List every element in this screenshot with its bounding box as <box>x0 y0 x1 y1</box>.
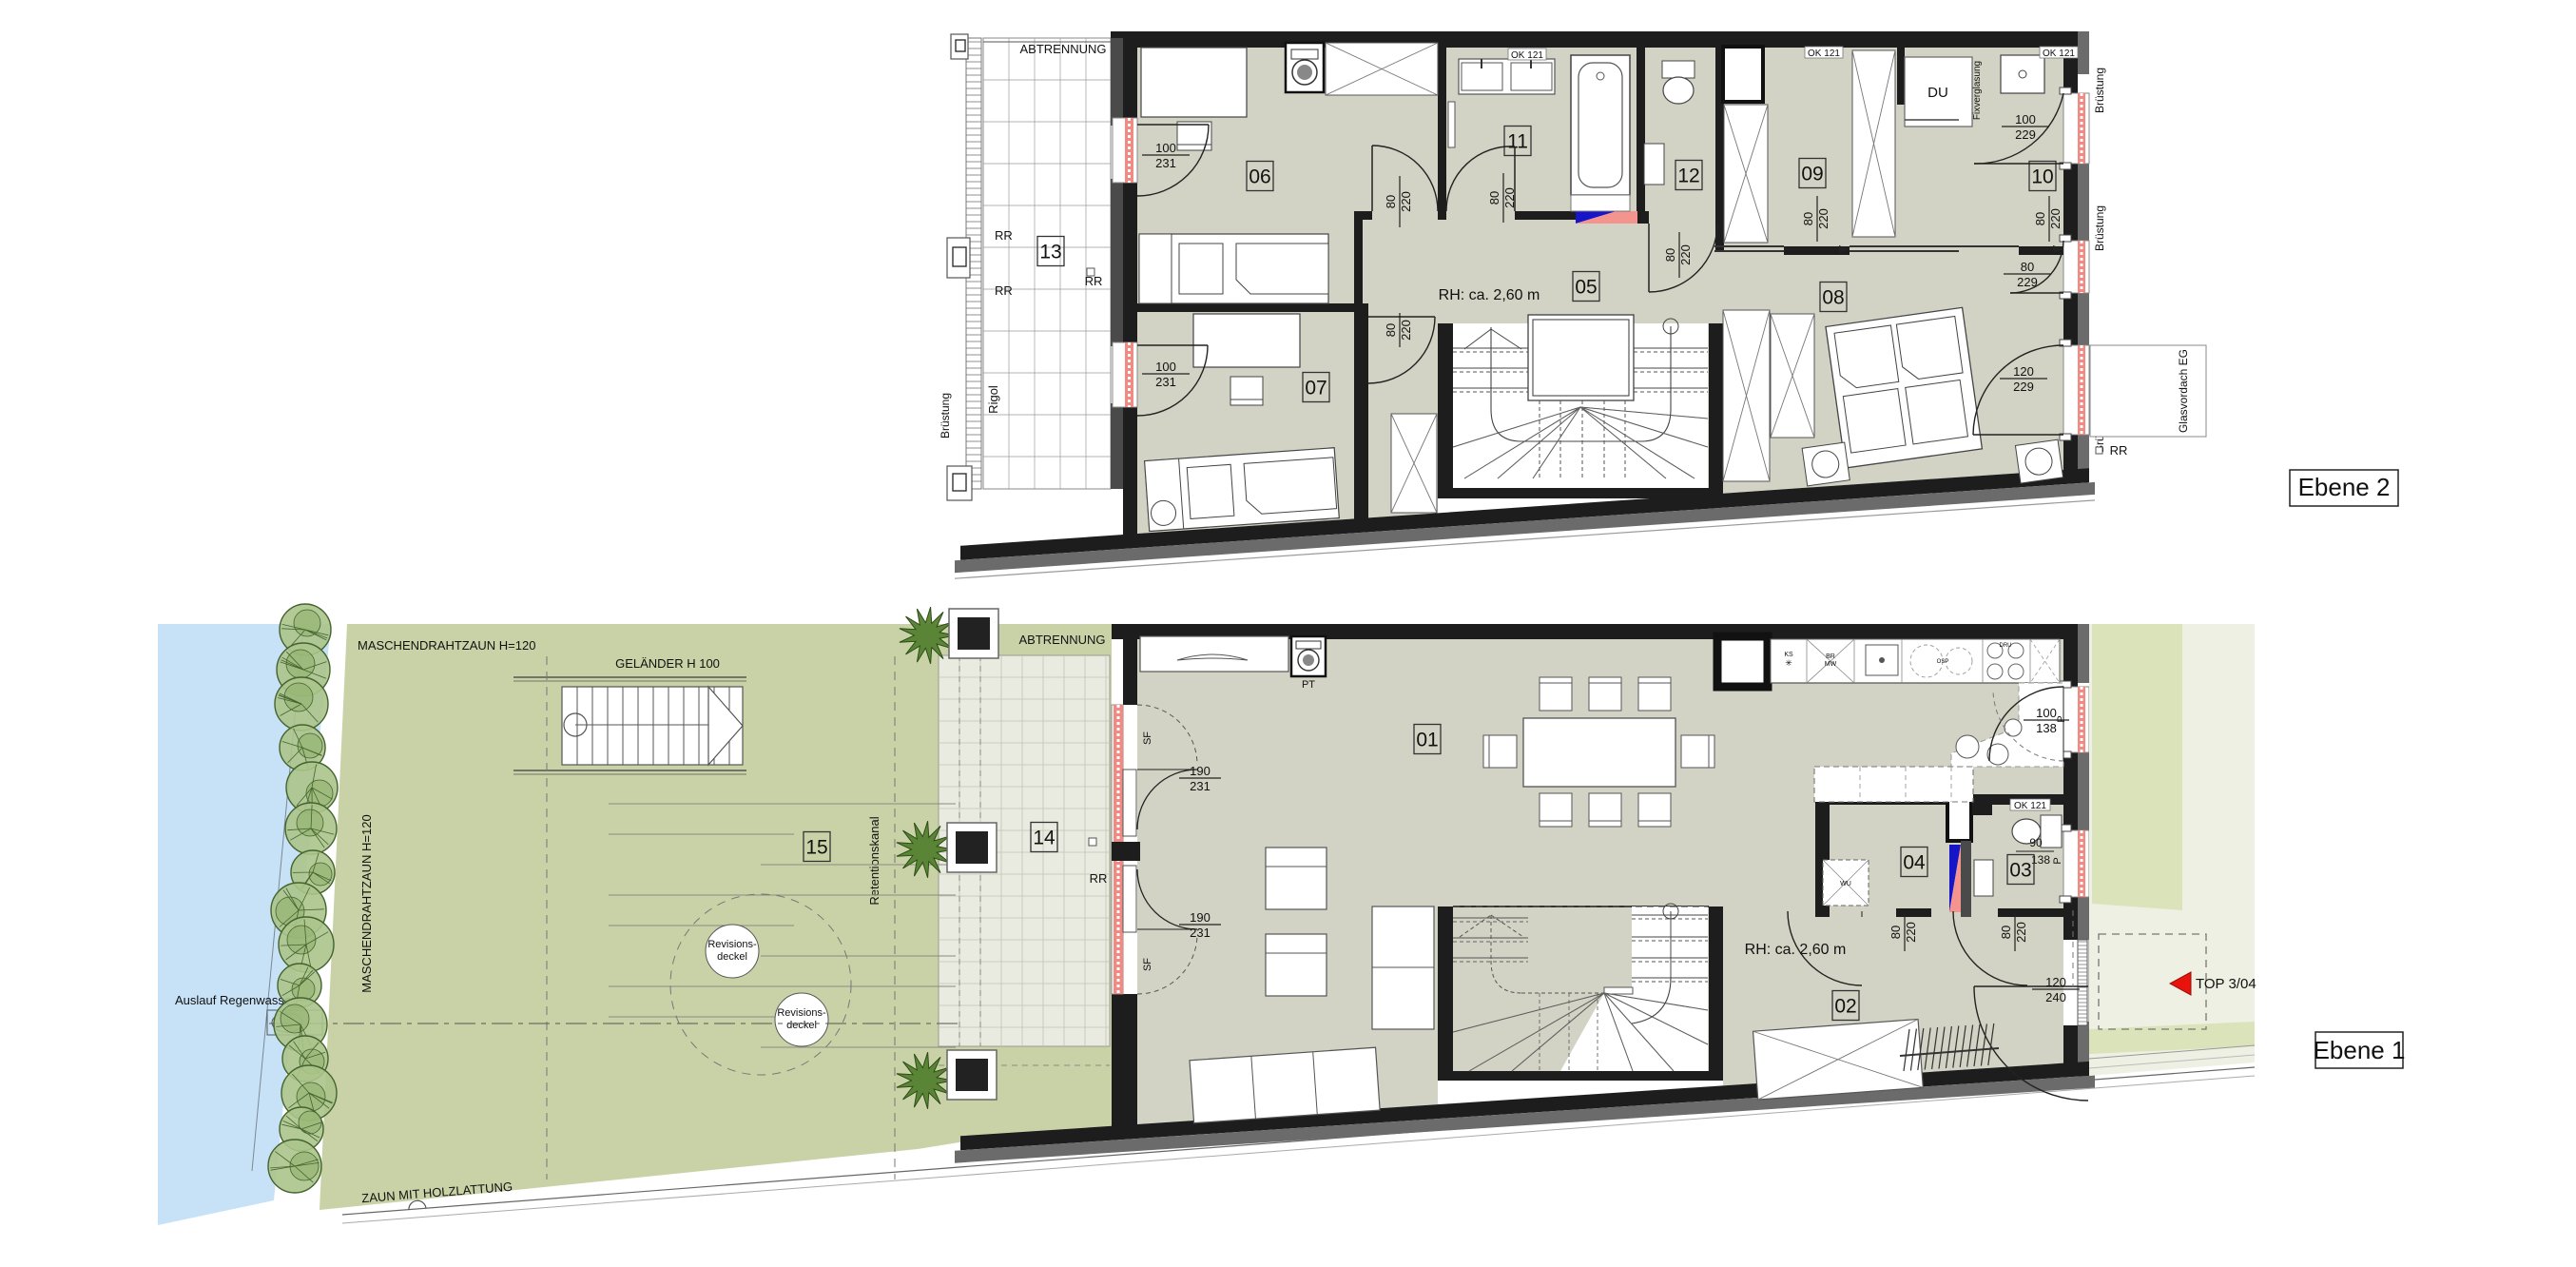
svg-text:OSP: OSP <box>1937 659 1949 665</box>
svg-text:80: 80 <box>1663 248 1677 262</box>
svg-text:RR: RR <box>2110 443 2128 458</box>
svg-text:80: 80 <box>1384 195 1398 208</box>
svg-text:220: 220 <box>2048 208 2063 229</box>
svg-text:KS: KS <box>1784 652 1793 658</box>
svg-text:231: 231 <box>1190 779 1211 793</box>
svg-text:Glasvordach EG: Glasvordach EG <box>2177 349 2190 433</box>
svg-text:deckel: deckel <box>717 951 747 963</box>
svg-text:OK 121: OK 121 <box>2043 49 2075 59</box>
svg-text:02: 02 <box>1834 996 1856 1018</box>
svg-text:90: 90 <box>2029 836 2043 849</box>
svg-text:229: 229 <box>2017 275 2038 289</box>
svg-text:RR: RR <box>1090 871 1108 886</box>
svg-text:80: 80 <box>1384 323 1398 337</box>
svg-text:08: 08 <box>1822 287 1844 309</box>
svg-text:ABTRENNUNG: ABTRENNUNG <box>1019 42 1106 56</box>
svg-text:MASCHENDRAHTZAUN H=120: MASCHENDRAHTZAUN H=120 <box>358 638 535 653</box>
svg-text:100: 100 <box>2015 112 2036 127</box>
svg-text:DRU: DRU <box>2000 643 2012 649</box>
svg-text:WU: WU <box>1840 881 1851 887</box>
svg-text:09: 09 <box>1801 164 1823 185</box>
svg-text:240: 240 <box>2045 990 2066 1004</box>
svg-text:80: 80 <box>1487 191 1501 205</box>
svg-text:SF: SF <box>1142 958 1153 971</box>
svg-text:OK 121: OK 121 <box>2014 801 2046 811</box>
svg-text:ABTRENNUNG: ABTRENNUNG <box>1018 633 1105 647</box>
svg-text:RR: RR <box>995 283 1013 298</box>
svg-text:13: 13 <box>1039 242 1061 263</box>
svg-text:Revisions-: Revisions- <box>707 939 757 950</box>
svg-text:SF: SF <box>1142 731 1153 745</box>
svg-text:01: 01 <box>1416 730 1438 751</box>
svg-text:Ebene 1: Ebene 1 <box>2314 1036 2406 1064</box>
svg-text:220: 220 <box>2014 922 2028 943</box>
svg-text:GELÄNDER H 100: GELÄNDER H 100 <box>615 656 720 671</box>
svg-text:11: 11 <box>1507 131 1528 153</box>
svg-text:OK 121: OK 121 <box>1808 49 1840 59</box>
svg-text:Auslauf Regenwasser: Auslauf Regenwasser <box>175 993 296 1007</box>
svg-text:MW: MW <box>1825 661 1837 668</box>
svg-text:80: 80 <box>1888 926 1903 939</box>
svg-text:05: 05 <box>1575 277 1597 299</box>
svg-text:15: 15 <box>805 837 827 859</box>
svg-text:80: 80 <box>2033 212 2047 225</box>
svg-text:✳: ✳ <box>1785 658 1792 668</box>
svg-text:04: 04 <box>1903 852 1926 874</box>
svg-text:07: 07 <box>1305 378 1327 400</box>
svg-text:100: 100 <box>2036 706 2057 720</box>
svg-text:120: 120 <box>2045 975 2066 989</box>
svg-text:12: 12 <box>1677 166 1699 187</box>
svg-text:RR: RR <box>995 228 1013 243</box>
svg-text:220: 220 <box>1399 320 1413 341</box>
svg-text:80: 80 <box>2021 260 2034 274</box>
svg-text:RR: RR <box>1085 274 1103 288</box>
svg-text:190: 190 <box>1190 764 1211 778</box>
svg-text:80: 80 <box>1999 926 2013 939</box>
svg-text:120: 120 <box>2013 364 2034 379</box>
svg-text:06: 06 <box>1249 166 1270 188</box>
svg-text:Fixverglasung: Fixverglasung <box>1972 61 1983 120</box>
svg-text:220: 220 <box>1502 187 1517 208</box>
svg-text:P: P <box>2052 857 2063 864</box>
svg-text:138: 138 <box>2036 721 2057 735</box>
svg-text:Brüstung: Brüstung <box>939 393 952 439</box>
svg-text:190: 190 <box>1190 910 1211 925</box>
svg-text:RH: ca. 2,60 m: RH: ca. 2,60 m <box>1745 942 1847 958</box>
svg-text:10: 10 <box>2031 166 2053 188</box>
svg-text:PT: PT <box>1302 679 1315 691</box>
svg-text:TOP 3/04: TOP 3/04 <box>2196 976 2256 992</box>
svg-text:Retentionskanal: Retentionskanal <box>867 816 881 905</box>
svg-text:220: 220 <box>1904 922 1918 943</box>
svg-text:229: 229 <box>2013 380 2034 394</box>
svg-text:100: 100 <box>1155 141 1176 155</box>
svg-text:MASCHENDRAHTZAUN H=120: MASCHENDRAHTZAUN H=120 <box>359 814 374 992</box>
svg-text:220: 220 <box>1816 208 1830 229</box>
svg-text:80: 80 <box>1801 212 1815 225</box>
svg-text:deckel: deckel <box>786 1020 817 1031</box>
svg-text:OK 121: OK 121 <box>1511 50 1543 61</box>
svg-text:Brüstung: Brüstung <box>2093 68 2106 113</box>
svg-text:DU: DU <box>1927 85 1948 101</box>
svg-text:03: 03 <box>2009 860 2031 882</box>
svg-text:229: 229 <box>2015 127 2036 142</box>
svg-text:14: 14 <box>1033 828 1056 849</box>
svg-text:231: 231 <box>1155 156 1176 170</box>
svg-text:231: 231 <box>1155 375 1176 389</box>
svg-text:RH: ca. 2,60 m: RH: ca. 2,60 m <box>1439 287 1540 303</box>
svg-text:220: 220 <box>1678 244 1693 265</box>
svg-text:P: P <box>2056 715 2067 722</box>
svg-text:Revisions-: Revisions- <box>777 1007 826 1019</box>
svg-text:Rigol: Rigol <box>986 385 1000 414</box>
svg-text:231: 231 <box>1190 926 1211 940</box>
svg-text:100: 100 <box>1155 360 1176 374</box>
svg-text:220: 220 <box>1399 191 1413 212</box>
svg-text:BR: BR <box>1826 653 1835 660</box>
svg-text:Ebene 2: Ebene 2 <box>2298 473 2391 501</box>
svg-text:Brüstung: Brüstung <box>2093 205 2106 251</box>
